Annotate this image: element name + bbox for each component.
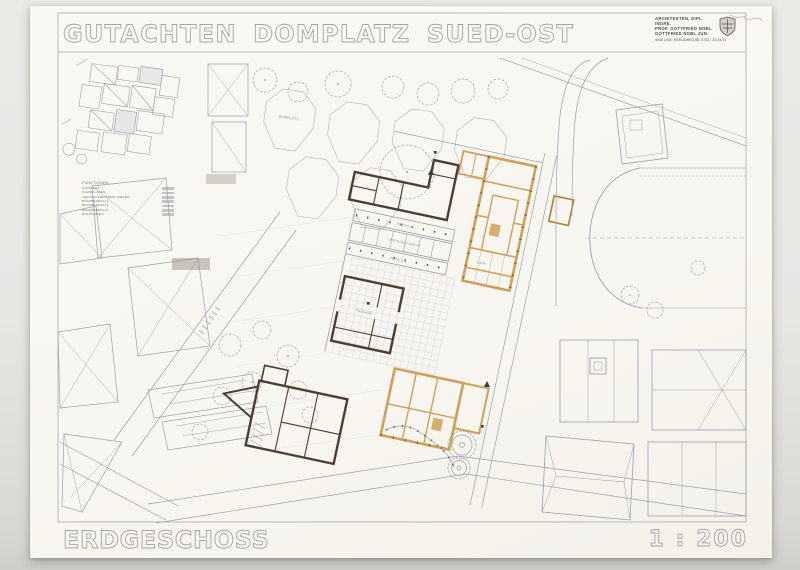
- road-bottom: [148, 456, 746, 523]
- cathedral: [500, 58, 746, 308]
- building-complex: PERGOLA LADENGESCHÄFTE PERGOLA CAFE PASS…: [212, 98, 582, 513]
- crest-icon: [719, 16, 736, 36]
- site-inset-plan: [57, 57, 181, 176]
- legend-title: FUNKTIONEN: [82, 181, 174, 185]
- floor-title: ERDGESCHOSS: [63, 526, 269, 554]
- stamp-line-3: GOTTFRIED NOBL JUN.: [655, 31, 719, 36]
- plan-label-pergola-top: PERGOLA: [397, 222, 415, 230]
- legend-swatch: [162, 192, 174, 195]
- sheet-title: GUTACHTEN DOMPLATZ SUED-OST: [63, 20, 574, 48]
- entrance-marks: [367, 151, 490, 428]
- context-left-buildings: [58, 64, 272, 512]
- legend-swatch: [162, 213, 174, 216]
- legend-swatch: [162, 209, 174, 212]
- plan-label-domplatz: DOMPLATZ: [278, 115, 299, 122]
- legend-swatch: [162, 205, 174, 208]
- stamp-line-1: ARCHITEKTEN, DIPL. INGRE.: [655, 16, 719, 26]
- drawing-frame: [58, 13, 746, 522]
- trees-group: [192, 68, 705, 440]
- legend: FUNKTIONEN CAFEHAUS KLEINE LÄDEN VERKAUF…: [82, 181, 174, 217]
- legend-swatch: [162, 187, 174, 190]
- paper-sheet: DOMPLATZ: [30, 6, 772, 558]
- orange-building-southeast: [381, 369, 489, 455]
- plan-label-cafe: CAFE: [476, 260, 486, 266]
- legend-item: WOHNUNGEN: [82, 213, 174, 216]
- context-right-buildings: [542, 340, 746, 520]
- architect-stamp: ARCHITEKTEN, DIPL. INGRE. PROF. GOTTFRIE…: [655, 16, 769, 43]
- plan-drawing: DOMPLATZ: [30, 6, 772, 558]
- legend-swatch: [162, 200, 174, 203]
- stamp-address: 4040 LINZ, KREUZWEG 85, 0732 / 23 24 91: [655, 38, 765, 43]
- legend-item-label: WOHNUNGEN: [82, 213, 160, 216]
- domplatz-paving: DOMPLATZ: [251, 87, 509, 246]
- courtyard-grid: [332, 257, 455, 375]
- scanned-drawing-background: DOMPLATZ: [0, 0, 800, 570]
- orange-building-east: [437, 151, 536, 291]
- plan-label-passage: PASSAGE: [356, 308, 373, 315]
- plan-label-pergola-bottom: PERGOLA: [389, 256, 407, 264]
- scale-label: 1 : 200: [648, 527, 748, 552]
- legend-swatch: [162, 196, 174, 199]
- plan-label-laden: LADENGESCHÄFTE: [387, 237, 421, 248]
